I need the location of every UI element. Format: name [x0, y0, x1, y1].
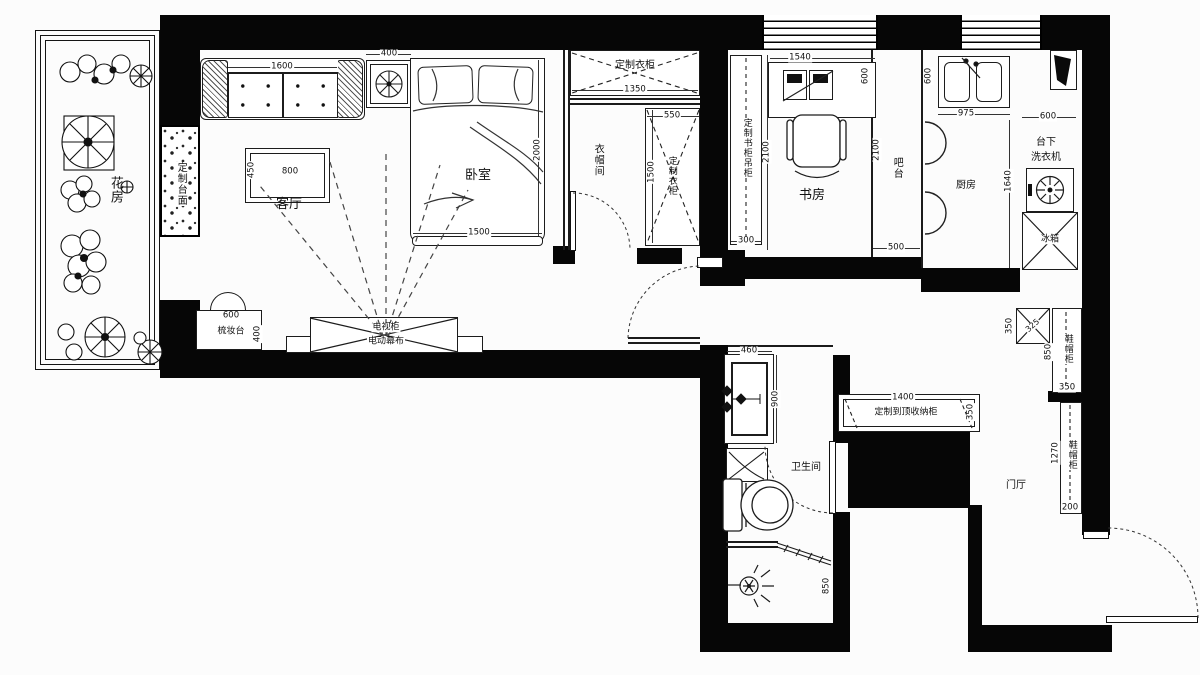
wall-mid-vertical	[700, 50, 728, 260]
label-cloakroom: 衣帽间	[592, 144, 603, 177]
sink-basin-right	[976, 62, 1002, 102]
sink-basin-left	[944, 62, 970, 102]
boiler-unit	[1050, 50, 1077, 90]
dim-desk-width: 1540	[788, 54, 812, 63]
dim-study-length: 2100	[763, 140, 772, 164]
dim-bed-length: 2000	[534, 138, 543, 162]
bathroom-door-leaf	[829, 441, 836, 514]
partition-closet-a	[570, 98, 700, 100]
monitor-right	[809, 70, 833, 100]
label-washer-line1: 台下	[1036, 138, 1056, 149]
label-fridge: 冰箱	[1040, 235, 1060, 244]
dim-sofa-width: 1600	[270, 63, 294, 72]
dim-wardrobe-side-width: 550	[663, 112, 681, 121]
floor-plan: 花房 定制台面 客厅 卧室 衣帽间 定制衣柜 定制衣柜 定制书柜吊柜 书房 吧台…	[0, 0, 1200, 675]
wall-left-upper	[160, 15, 200, 125]
sofa-arm-right	[337, 60, 363, 118]
wall-bath-bottom	[700, 623, 850, 652]
vanity-basin	[731, 362, 768, 436]
dim-shoe2-depth: 200	[1061, 504, 1079, 513]
shower-head	[728, 565, 774, 607]
hall-door-sill-a	[628, 337, 700, 339]
side-table-inner	[370, 64, 408, 104]
wall-hall-corner	[848, 432, 970, 508]
sofa-arm-left	[202, 60, 228, 118]
label-tv-cabinet: 电视柜	[371, 323, 400, 332]
dimline-desk	[770, 58, 875, 59]
dim-wardrobe-top: 1350	[623, 86, 647, 95]
dressing-stool	[210, 292, 246, 310]
label-bathroom: 卫生间	[791, 463, 821, 474]
washing-machine	[1026, 168, 1074, 212]
entry-door-leaf	[1106, 616, 1198, 623]
dim-sink-depth: 600	[925, 67, 934, 85]
sofa-cushion-right	[283, 73, 338, 118]
window-kitchen	[960, 15, 1042, 50]
dim-washer-width: 600	[1039, 113, 1057, 122]
wall-foyer-bottom	[968, 625, 1112, 652]
pillow-left	[417, 65, 473, 105]
wall-top-mid	[878, 15, 960, 50]
label-wardrobe-top: 定制衣柜	[615, 61, 655, 72]
label-bedroom: 卧室	[465, 169, 491, 183]
dim-sink-width: 975	[957, 110, 975, 119]
label-washer-line2: 洗衣机	[1031, 153, 1061, 164]
window-study	[762, 15, 878, 50]
dim-dresser-depth: 400	[254, 325, 263, 343]
dim-corner-cab-depth: 350	[1006, 317, 1015, 335]
desk-chair	[787, 115, 846, 178]
wall-right	[1082, 15, 1110, 535]
label-custom-counter: 定制台面	[174, 162, 187, 206]
wall-kitchen-bottom	[921, 268, 1020, 292]
label-flower-room: 花房	[108, 176, 122, 204]
wall-study-bottom	[728, 257, 921, 279]
label-storage-cabinet: 定制到顶收纳柜	[873, 408, 938, 417]
bath-shelf	[726, 448, 768, 482]
pillow-right	[477, 65, 533, 105]
flower-room-frame-inner	[45, 40, 150, 360]
label-electric-screen: 电动幕布	[367, 337, 405, 346]
cloakroom-door-leaf	[570, 191, 576, 251]
wall-bath-right-lower	[833, 512, 850, 625]
dim-vanity-length: 900	[772, 390, 781, 408]
shower-glass	[777, 543, 831, 565]
label-bar: 吧台	[891, 157, 902, 179]
dimline-washer-length	[1009, 120, 1010, 268]
wall-cloakroom-stub-right	[637, 248, 682, 264]
bathroom-door-arc	[765, 445, 833, 513]
sofa-cushion-left	[228, 73, 283, 118]
wall-bottom-living	[160, 350, 702, 378]
label-shoe-cabinet-lower: 鞋帽柜	[1065, 440, 1076, 470]
partition-bedroom-closet-a	[563, 50, 565, 250]
wall-top-left	[160, 15, 762, 50]
label-study: 书房	[799, 189, 825, 203]
label-bookcase: 定制书柜吊柜	[740, 118, 751, 178]
toilet	[723, 479, 793, 531]
shower-divider-a	[726, 541, 778, 543]
dim-shoe2-length: 1270	[1052, 441, 1061, 465]
dim-wardrobe-side-length: 1500	[648, 160, 657, 184]
label-wardrobe-side: 定制衣柜	[666, 156, 675, 196]
partition-closet-b	[570, 103, 700, 105]
dim-bar-length: 2100	[873, 138, 882, 162]
dim-vanity-width: 460	[740, 347, 758, 356]
label-dressing-table: 梳妆台	[217, 327, 244, 336]
hall-door-arc	[628, 266, 699, 338]
monitor-left	[783, 70, 807, 100]
label-foyer: 门厅	[1006, 481, 1026, 492]
label-kitchen: 厨房	[956, 181, 976, 192]
dim-washer-length: 1640	[1005, 169, 1014, 193]
kitchen-swing-doors	[925, 122, 946, 234]
label-living-room: 客厅	[276, 198, 302, 212]
entry-door-notch	[1083, 531, 1109, 539]
dim-bed-width: 1500	[467, 229, 491, 238]
hall-door-sill-b	[628, 342, 700, 344]
entry-door-arc	[1108, 528, 1198, 618]
dim-side-table: 400	[380, 50, 398, 59]
label-shoe-cabinet-upper: 鞋帽柜	[1061, 334, 1072, 364]
dim-shower-length: 850	[823, 577, 832, 595]
dim-coffee-table-depth: 450	[248, 161, 257, 179]
dim-desk-depth: 600	[862, 67, 871, 85]
shower-divider-b	[726, 546, 778, 548]
dim-bar-width: 500	[887, 244, 905, 253]
dim-bookcase-depth: 300	[737, 237, 755, 246]
hall-door-leaf	[697, 257, 723, 268]
dim-storage-depth: 350	[967, 403, 976, 421]
dim-shoe1-length: 850	[1045, 343, 1054, 361]
dim-coffee-table-width: 800	[281, 168, 299, 177]
dim-dresser-width: 600	[222, 312, 240, 321]
cloakroom-door-arc	[573, 193, 630, 250]
dim-storage-width: 1400	[891, 394, 915, 403]
dim-shoe1-depth: 350	[1058, 384, 1076, 393]
